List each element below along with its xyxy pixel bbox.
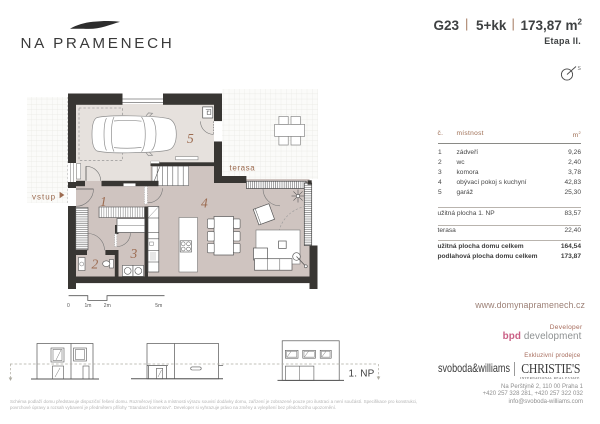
svg-text:S: S [578,66,582,72]
svg-text:1: 1 [100,194,107,209]
svg-text:4: 4 [201,196,208,211]
svg-text:3: 3 [130,246,138,261]
svg-text:5: 5 [187,131,194,146]
svg-text:vstup: vstup [32,193,56,202]
svg-text:0: 0 [67,303,70,309]
svg-text:terasa: terasa [230,164,256,173]
svg-text:2m: 2m [104,303,111,309]
svg-text:5m: 5m [155,303,162,309]
svg-text:1. NP: 1. NP [349,369,375,380]
svg-text:2: 2 [92,257,99,272]
svg-text:1m: 1m [85,303,92,309]
